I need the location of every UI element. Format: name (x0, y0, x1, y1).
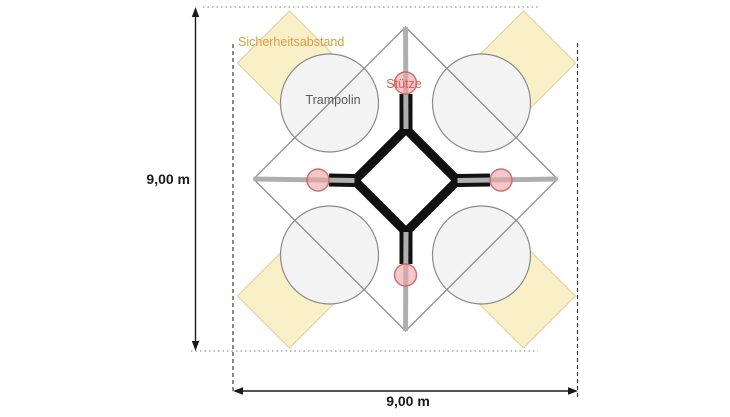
safety-distance-label: Sicherheitsabstand (238, 35, 344, 49)
dimension-arrowhead-right-icon (568, 387, 578, 394)
diagram-canvas: Sicherheitsabstand Trampolin Stütze 9,00… (0, 0, 730, 417)
support-post-bottom (395, 264, 417, 286)
support-label: Stütze (386, 77, 421, 91)
width-dimension-label: 9,00 m (386, 393, 430, 409)
support-post-left (307, 169, 329, 191)
dimension-arrowhead-up-icon (192, 7, 199, 17)
center-frame-square (355, 129, 458, 232)
dimension-arrowhead-left-icon (233, 387, 243, 394)
dimension-arrowhead-down-icon (192, 341, 199, 351)
trampoline-label: Trampolin (305, 93, 360, 107)
height-dimension-label: 9,00 m (146, 171, 190, 187)
support-post-right (490, 169, 512, 191)
trampoline-plan-svg: Sicherheitsabstand Trampolin Stütze 9,00… (0, 0, 730, 417)
vertical-dimension (192, 7, 199, 351)
beam-left (254, 179, 355, 181)
